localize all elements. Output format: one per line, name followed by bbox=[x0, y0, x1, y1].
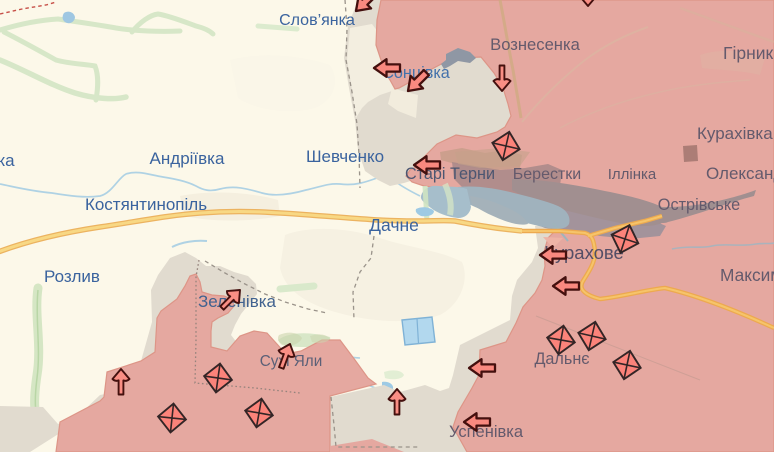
svg-text:Вознесенка: Вознесенка bbox=[490, 35, 580, 54]
svg-text:Гірник: Гірник bbox=[723, 43, 774, 63]
svg-text:ка: ка bbox=[0, 151, 15, 170]
svg-text:Олександрівка: Олександрівка bbox=[706, 164, 774, 183]
svg-text:Слов’янка: Слов’янка bbox=[279, 12, 355, 29]
svg-text:Іллінка: Іллінка bbox=[608, 166, 657, 183]
svg-text:Курахівка: Курахівка bbox=[697, 124, 773, 143]
svg-text:Андріївка: Андріївка bbox=[150, 149, 225, 168]
svg-text:Острівське: Острівське bbox=[658, 196, 740, 214]
svg-text:Дачне: Дачне bbox=[369, 215, 419, 235]
svg-text:Костянтинопіль: Костянтинопіль bbox=[85, 195, 207, 214]
svg-text:Шевченко: Шевченко bbox=[306, 147, 384, 166]
svg-text:Берестки: Берестки bbox=[513, 166, 581, 183]
svg-text:Розлив: Розлив bbox=[44, 267, 100, 286]
svg-text:Максимільянівка: Максимільянівка bbox=[720, 265, 774, 285]
